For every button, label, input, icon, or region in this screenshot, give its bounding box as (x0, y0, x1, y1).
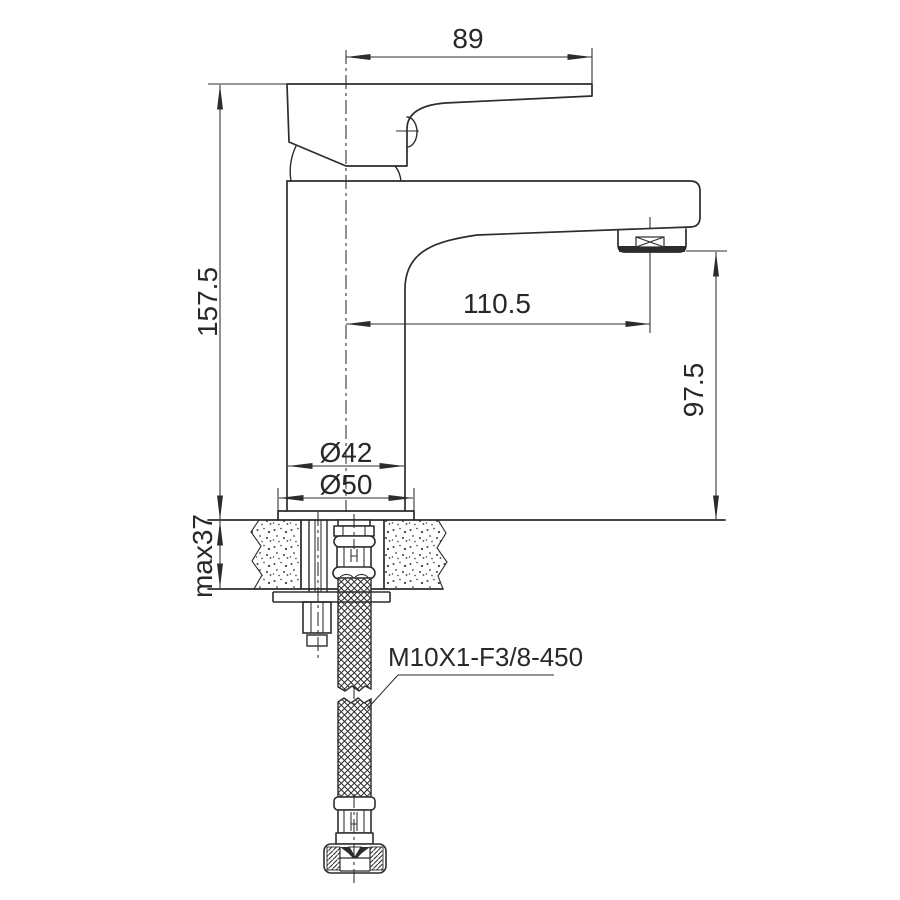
dim-label-body-diameter: Ø42 (320, 437, 373, 468)
faucet-dimension-drawing: 89 157.5 110.5 97.5 Ø42 Ø50 max37 M10X1-… (0, 0, 900, 900)
hose-braid-lower (338, 698, 371, 797)
dim-label-spout-reach: 110.5 (463, 288, 531, 319)
hose-collar-lower (333, 567, 375, 579)
hose-barrel (337, 547, 371, 568)
drawing-background (0, 0, 900, 900)
dim-label-base-diameter: Ø50 (320, 469, 373, 500)
nut-section-hatch-right (370, 847, 383, 870)
dim-label-max-thickness: max37 (187, 514, 218, 598)
label-supply-hose-spec: M10X1-F3/8-450 (388, 642, 583, 672)
dim-label-overall-height: 157.5 (192, 267, 223, 337)
technical-drawing-canvas: 89 157.5 110.5 97.5 Ø42 Ø50 max37 M10X1-… (0, 0, 900, 900)
hose-braid-upper (338, 578, 371, 691)
dim-label-outlet-height: 97.5 (678, 363, 709, 418)
dim-label-handle-length: 89 (452, 23, 483, 54)
nut-section-hatch-left (327, 847, 340, 870)
counter-material-right (384, 520, 447, 589)
